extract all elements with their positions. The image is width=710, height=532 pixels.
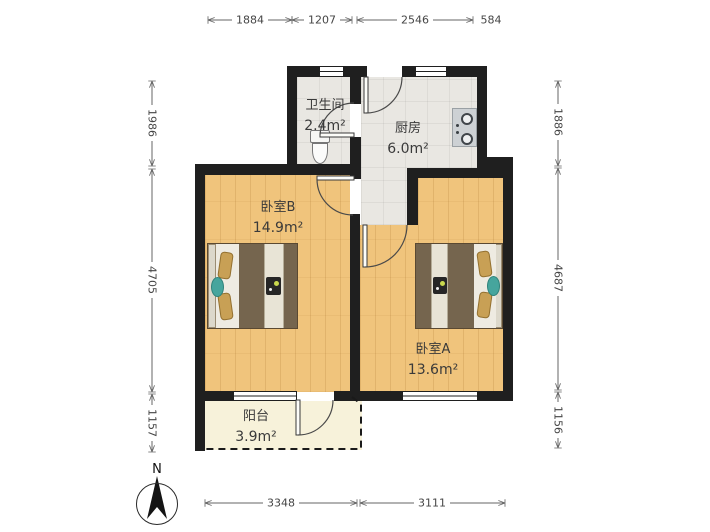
dimension-label: 3111 — [414, 497, 450, 510]
dimension-label: 4705 — [146, 262, 159, 298]
dimension-label: 1986 — [146, 105, 159, 141]
wall-segment — [418, 168, 477, 178]
wall-segment — [477, 66, 487, 168]
corridor-floor — [361, 168, 407, 225]
room-name: 卫生间 — [304, 96, 346, 116]
tray-dot — [274, 281, 279, 286]
dimension-label: 3348 — [263, 497, 299, 510]
tray-dot — [269, 288, 272, 291]
stove-icon — [452, 108, 477, 147]
bedroom-a-window — [402, 391, 478, 401]
wall-segment — [402, 66, 416, 77]
wall-segment — [195, 164, 205, 451]
balcony-floor — [205, 401, 362, 450]
tray-dot — [440, 281, 445, 286]
bathroom-label: 卫生间 2.4m² — [304, 96, 346, 137]
bed-accent — [487, 276, 500, 296]
bedroom-b-bed — [207, 243, 298, 329]
wall-segment — [195, 164, 297, 175]
dimension-label: 1884 — [232, 14, 268, 27]
stove-burner-icon — [461, 133, 473, 145]
room-area: 3.9m² — [235, 427, 277, 448]
dimension-label: 584 — [477, 14, 506, 27]
bedroom-b-window — [233, 391, 297, 401]
wall-segment — [350, 137, 361, 179]
bedroom-b-label: 卧室B 14.9m² — [253, 198, 303, 239]
dimension-label: 2546 — [397, 14, 433, 27]
stove-knob-icon — [456, 124, 459, 127]
room-name: 阳台 — [235, 407, 277, 427]
room-name: 厨房 — [387, 119, 429, 139]
stove-knob-icon — [456, 131, 459, 134]
dimension-label: 1157 — [146, 405, 159, 441]
wall-segment — [350, 66, 361, 104]
bed-tray-icon — [266, 277, 281, 295]
compass-north-label: N — [152, 462, 162, 477]
kitchen-window — [415, 66, 447, 77]
wall-segment — [350, 214, 360, 401]
balcony-label: 阳台 3.9m² — [235, 407, 277, 448]
dimension-label: 1207 — [304, 14, 340, 27]
stove-burner-icon — [461, 113, 473, 125]
room-name: 卧室A — [408, 340, 458, 360]
wall-segment — [407, 168, 418, 225]
wall-segment — [287, 66, 297, 175]
wall-segment — [503, 168, 513, 401]
room-area: 13.6m² — [408, 360, 458, 381]
dimension-label: 1156 — [552, 402, 565, 438]
room-area: 2.4m² — [304, 116, 346, 137]
dimension-label: 4687 — [552, 260, 565, 296]
bathroom-window — [319, 66, 344, 77]
wall-segment — [334, 391, 351, 401]
bedroom-a-bed — [415, 243, 503, 329]
floor-plan-canvas: N 卫生间 2.4m² 厨房 6.0m² 卧室B 14.9m² 卧室A 13.6… — [0, 0, 710, 532]
wall-segment — [297, 164, 350, 175]
wall-segment — [477, 391, 513, 401]
dimension-label: 1886 — [552, 104, 565, 140]
room-area: 14.9m² — [253, 218, 303, 239]
room-name: 卧室B — [253, 198, 303, 218]
tray-dot — [436, 287, 439, 290]
bed-accent — [211, 277, 224, 297]
wall-segment — [360, 391, 403, 401]
wall-segment — [205, 391, 234, 401]
kitchen-label: 厨房 6.0m² — [387, 119, 429, 160]
bedroom-a-label: 卧室A 13.6m² — [408, 340, 458, 381]
compass-circle-icon — [136, 483, 178, 525]
room-area: 6.0m² — [387, 139, 429, 160]
